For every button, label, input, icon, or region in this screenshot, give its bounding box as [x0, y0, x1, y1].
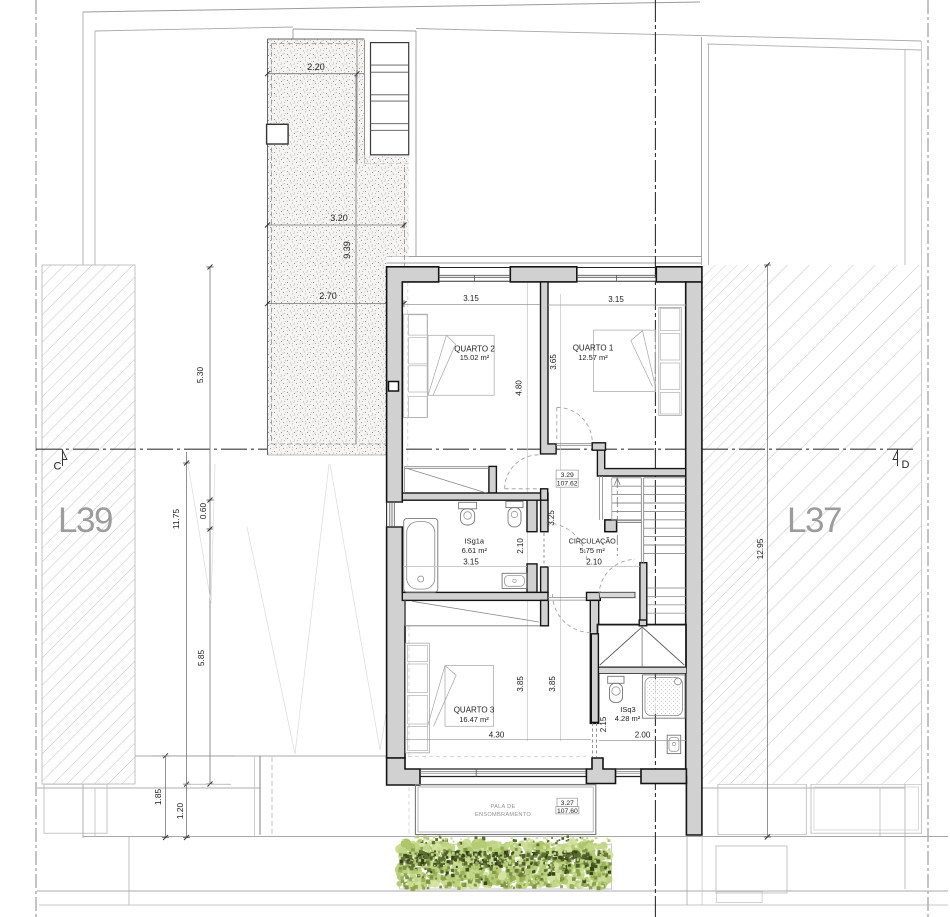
svg-text:3.25: 3.25	[547, 510, 556, 526]
svg-text:12.57 m²: 12.57 m²	[578, 353, 608, 362]
svg-text:ISq3: ISq3	[620, 705, 635, 714]
svg-text:4.30: 4.30	[489, 731, 505, 740]
svg-text:3.15: 3.15	[463, 294, 479, 303]
svg-text:QUARTO 1: QUARTO 1	[573, 344, 614, 353]
svg-text:1.85: 1.85	[153, 789, 163, 806]
svg-text:3.85: 3.85	[516, 676, 525, 692]
svg-text:2.15: 2.15	[599, 716, 608, 732]
svg-text:ISg1a: ISg1a	[464, 537, 484, 546]
svg-text:D: D	[902, 459, 910, 471]
svg-text:1.20: 1.20	[175, 803, 185, 820]
svg-text:9.39: 9.39	[342, 241, 352, 259]
svg-text:3.29: 3.29	[561, 472, 574, 479]
svg-text:3.15: 3.15	[608, 295, 624, 304]
svg-text:2.00: 2.00	[635, 731, 651, 740]
svg-text:3.65: 3.65	[549, 354, 558, 370]
svg-text:L39: L39	[58, 501, 112, 540]
svg-text:3.20: 3.20	[330, 213, 348, 223]
svg-text:ENSOMBRAMENTO: ENSOMBRAMENTO	[475, 812, 531, 818]
svg-text:6.61 m²: 6.61 m²	[462, 546, 488, 555]
svg-text:16.47 m²: 16.47 m²	[459, 715, 489, 724]
svg-text:107.60: 107.60	[557, 808, 578, 815]
svg-text:3.27: 3.27	[561, 800, 574, 807]
svg-text:2.20: 2.20	[307, 62, 325, 72]
svg-text:4.80: 4.80	[515, 380, 524, 396]
svg-text:QUARTO 3: QUARTO 3	[454, 706, 495, 715]
svg-text:0.60: 0.60	[198, 503, 208, 520]
svg-text:4.28 m²: 4.28 m²	[615, 714, 641, 723]
svg-text:L37: L37	[787, 501, 841, 540]
svg-text:15.02 m²: 15.02 m²	[460, 353, 490, 362]
svg-text:2.10: 2.10	[516, 538, 525, 554]
svg-text:5.75 m²: 5.75 m²	[579, 546, 605, 555]
svg-text:2.10: 2.10	[586, 558, 602, 567]
svg-text:3.15: 3.15	[463, 558, 479, 567]
svg-text:CIRCULAÇÃO: CIRCULAÇÃO	[569, 537, 617, 546]
svg-text:5.30: 5.30	[195, 367, 205, 384]
svg-text:107.62: 107.62	[557, 481, 578, 488]
svg-text:3.85: 3.85	[548, 676, 557, 692]
svg-text:2.70: 2.70	[319, 291, 337, 301]
svg-text:11.75: 11.75	[171, 509, 181, 530]
svg-text:5.85: 5.85	[196, 650, 206, 667]
svg-text:C: C	[54, 461, 62, 473]
svg-text:PALA DE: PALA DE	[490, 804, 515, 810]
svg-text:12.95: 12.95	[755, 538, 765, 559]
